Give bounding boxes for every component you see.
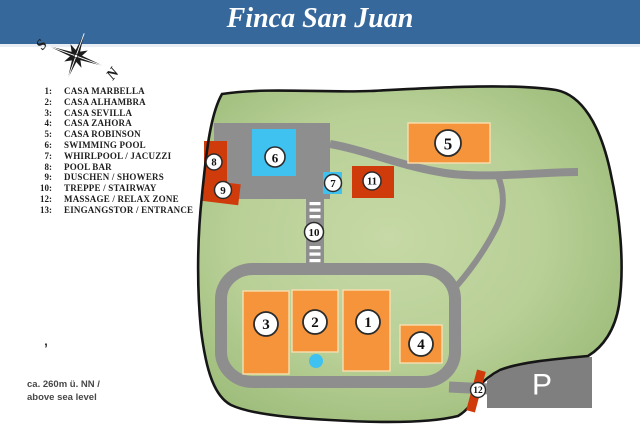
svg-text:1: 1 (364, 315, 372, 331)
svg-text:4: 4 (417, 337, 425, 353)
parking-label: P (532, 369, 552, 402)
svg-text:6: 6 (272, 151, 279, 166)
svg-text:9: 9 (220, 185, 226, 197)
marker-whirlpool: 7 (325, 175, 342, 192)
svg-text:11: 11 (367, 177, 377, 188)
marker-entrance: 12 (471, 383, 486, 398)
svg-text:10: 10 (309, 227, 321, 239)
compass-north-label: N (103, 64, 124, 84)
svg-text:8: 8 (211, 158, 216, 169)
svg-text:5: 5 (444, 135, 453, 154)
marker-casa-alhambra: 2 (303, 310, 327, 334)
marker-massage-zone: 11 (363, 172, 381, 190)
page: Finca San Juan 1:CASA MARBELLA 2:CASA AL… (0, 0, 640, 427)
marker-casa-zahora: 4 (409, 332, 433, 356)
svg-text:3: 3 (262, 317, 270, 333)
small-pool-dot (309, 354, 323, 368)
marker-casa-robinson: 5 (435, 130, 461, 156)
svg-text:2: 2 (311, 315, 319, 331)
svg-text:12: 12 (473, 386, 483, 396)
compass-south-label: S (33, 37, 51, 53)
svg-text:7: 7 (330, 178, 336, 190)
compass-rose: S N (33, 33, 123, 84)
site-map: P 1 2 3 4 (0, 0, 640, 427)
marker-stairway: 10 (305, 223, 324, 242)
marker-casa-marbella: 1 (356, 310, 380, 334)
marker-showers: 9 (215, 182, 232, 199)
marker-swimming-pool: 6 (265, 147, 285, 167)
marker-casa-sevilla: 3 (254, 312, 278, 336)
marker-pool-bar: 8 (206, 154, 222, 170)
